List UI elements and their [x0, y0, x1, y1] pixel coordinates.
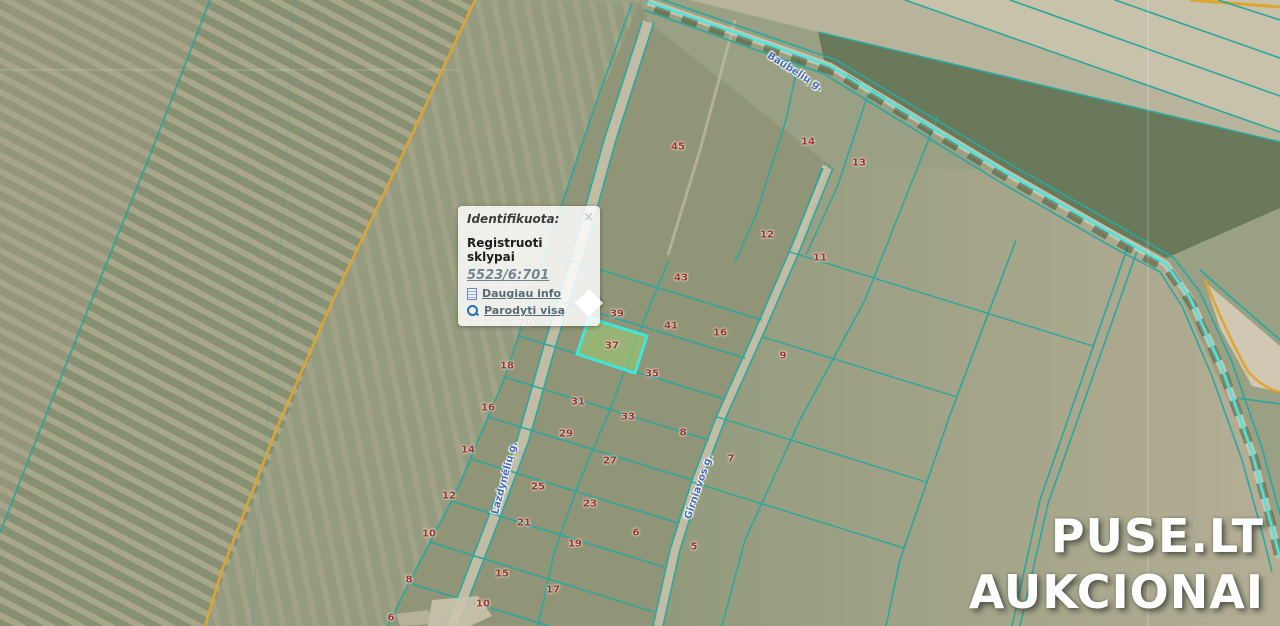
more-info-link[interactable]: Daugiau info [482, 287, 561, 300]
parcel-id-link[interactable]: 5523/6:701 [467, 268, 549, 283]
popup-section-title: Registruoti sklypai [467, 236, 591, 264]
watermark-line2: AUKCIONAI [969, 564, 1264, 620]
show-all-row: Parodyti visą [467, 304, 591, 317]
watermark-line1: PUSE.LT [969, 508, 1264, 564]
more-info-row: Daugiau info [467, 287, 591, 300]
magnifier-icon [467, 305, 479, 317]
show-all-link[interactable]: Parodyti visą [484, 304, 565, 317]
info-doc-icon [467, 288, 477, 300]
close-icon[interactable]: × [583, 212, 594, 223]
identify-popup: Identifikuota: × Registruoti sklypai 552… [458, 206, 600, 326]
map-canvas[interactable]: 4514131211433941169201837351631338291427… [0, 0, 1280, 626]
popup-title: Identifikuota: [467, 212, 559, 226]
site-watermark: PUSE.LT AUKCIONAI [969, 508, 1264, 620]
